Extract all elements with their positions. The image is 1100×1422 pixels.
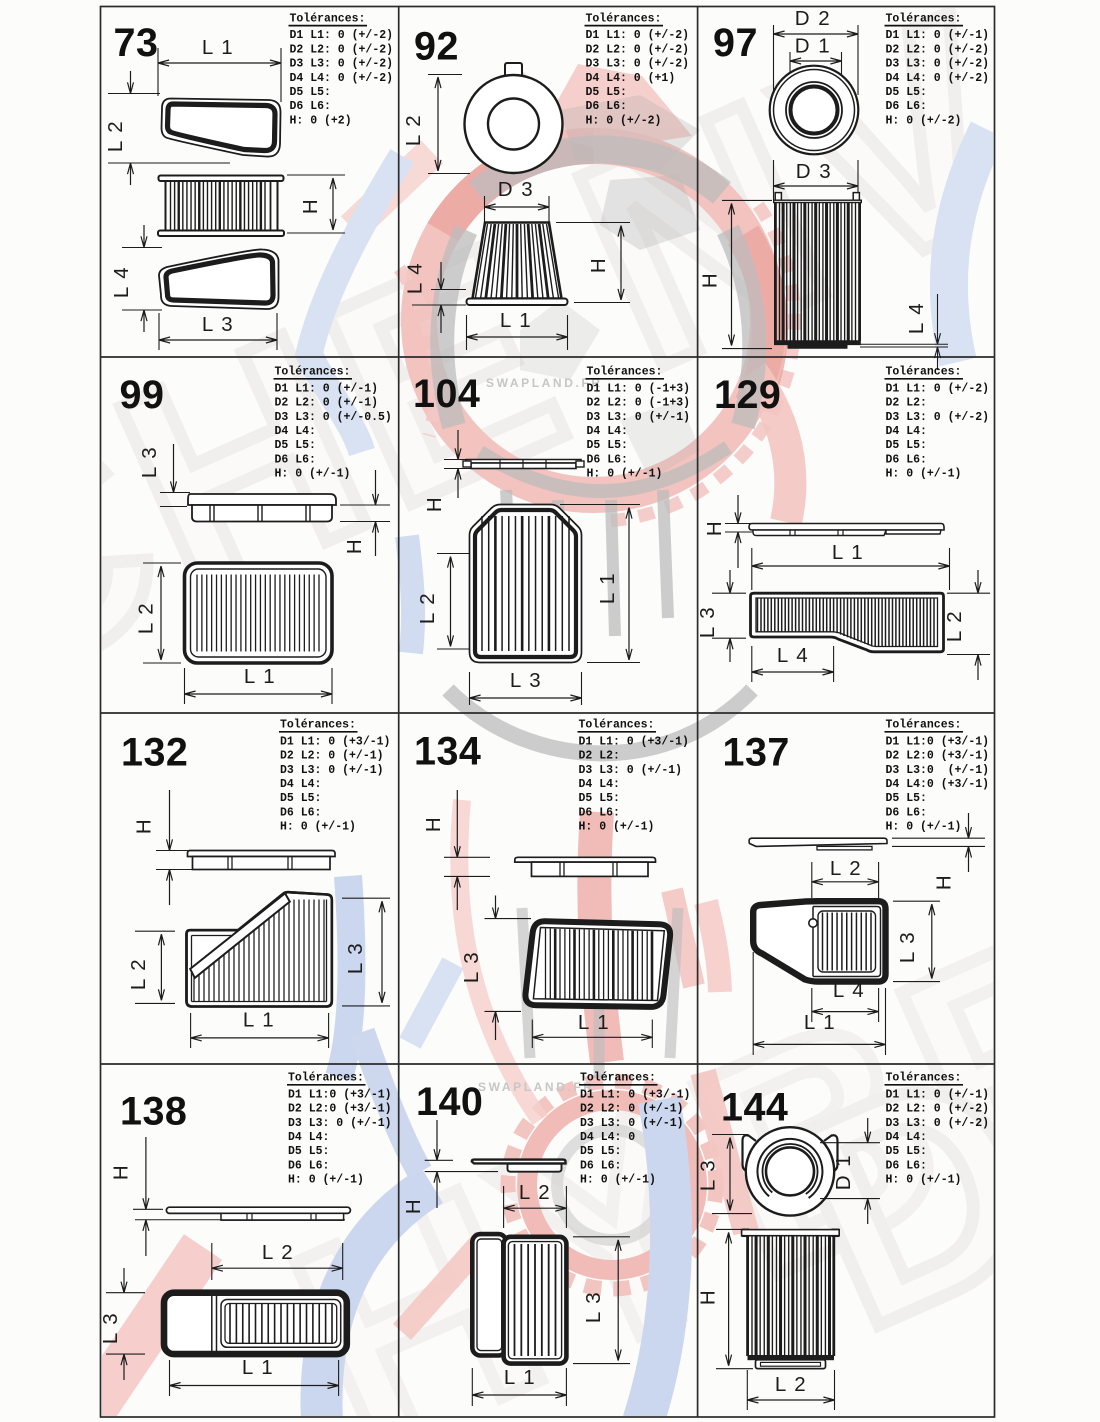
svg-text:L 3: L 3: [510, 669, 542, 692]
svg-text:H: H: [299, 198, 322, 214]
svg-text:D2 L2: 0 (-1+3): D2 L2: 0 (-1+3): [587, 397, 691, 410]
svg-text:SWAPLAND.FR: SWAPLAND.FR: [478, 1080, 595, 1094]
svg-text:D6 L6:: D6 L6:: [886, 100, 927, 113]
svg-text:H: H: [402, 1198, 425, 1214]
svg-text:H: 0 (+/-2): H: 0 (+/-2): [586, 114, 662, 127]
svg-text:D2 L2: 0 (+/-2): D2 L2: 0 (+/-2): [886, 43, 990, 56]
svg-text:D 3: D 3: [498, 178, 534, 201]
svg-text:L 3: L 3: [582, 1291, 605, 1323]
svg-text:D3 L3:0 (+/-1): D3 L3:0 (+/-1): [886, 764, 990, 777]
svg-text:D4 L4:0 (+3/-1): D4 L4:0 (+3/-1): [886, 778, 990, 791]
svg-text:D1 L1:0 (+3/-1): D1 L1:0 (+3/-1): [288, 1088, 392, 1101]
svg-text:H: 0 (+2): H: 0 (+2): [290, 114, 352, 127]
svg-text:D5 L5:: D5 L5:: [886, 792, 927, 805]
svg-text:D1 L1: 0 (+/-1): D1 L1: 0 (+/-1): [275, 382, 379, 395]
svg-text:H: H: [343, 538, 366, 554]
svg-text:L 3: L 3: [99, 1312, 122, 1344]
svg-text:H: H: [587, 257, 610, 273]
svg-text:D6 L6:: D6 L6:: [290, 100, 331, 113]
svg-text:Tolérances:: Tolérances:: [586, 12, 662, 25]
svg-text:H: 0 (+/-1): H: 0 (+/-1): [886, 1174, 962, 1187]
svg-text:L 1: L 1: [243, 1009, 275, 1032]
svg-text:D4 L4: 0 (+/-2): D4 L4: 0 (+/-2): [886, 72, 990, 85]
svg-text:D5 L5:: D5 L5:: [586, 86, 627, 99]
svg-text:L 1: L 1: [202, 36, 234, 59]
svg-text:H: 0 (+/-1): H: 0 (+/-1): [275, 468, 351, 481]
svg-text:L 2: L 2: [104, 120, 127, 152]
svg-text:Tolérances:: Tolérances:: [579, 719, 655, 732]
svg-text:D3 L3: 0 (+/-2): D3 L3: 0 (+/-2): [886, 411, 990, 424]
svg-text:L 1: L 1: [832, 541, 864, 564]
svg-text:L 2: L 2: [416, 592, 439, 624]
svg-text:D1 L1: 0 (+/-1): D1 L1: 0 (+/-1): [886, 29, 990, 42]
svg-text:D5 L5:: D5 L5:: [280, 792, 321, 805]
svg-text:L 2: L 2: [402, 114, 425, 146]
svg-text:D3 L3: 0 (+/-1): D3 L3: 0 (+/-1): [587, 411, 691, 424]
svg-text:D6 L6:: D6 L6:: [586, 100, 627, 113]
svg-text:D6 L6:: D6 L6:: [886, 453, 927, 466]
svg-text:D4 L4:: D4 L4:: [886, 1131, 927, 1144]
svg-text:H: H: [703, 520, 726, 536]
svg-text:L 3: L 3: [696, 606, 719, 638]
svg-text:L 2: L 2: [943, 610, 966, 642]
svg-text:D2 L2:0 (+3/-1): D2 L2:0 (+3/-1): [288, 1103, 392, 1116]
svg-text:D2 L2:0 (+3/-1): D2 L2:0 (+3/-1): [886, 750, 990, 763]
svg-text:H: 0 (+/-1): H: 0 (+/-1): [280, 821, 356, 834]
svg-text:D4 L4:: D4 L4:: [579, 778, 620, 791]
svg-text:D1 L1: 0 (+/-2): D1 L1: 0 (+/-2): [586, 29, 690, 42]
svg-text:D1 L1: 0 (+/-2): D1 L1: 0 (+/-2): [886, 382, 990, 395]
svg-text:D6 L6:: D6 L6:: [275, 453, 316, 466]
svg-text:L 1: L 1: [578, 1011, 610, 1034]
svg-text:140: 140: [416, 1080, 483, 1124]
svg-text:D6 L6:: D6 L6:: [580, 1159, 621, 1172]
svg-text:D3 L3: 0 (+/-1): D3 L3: 0 (+/-1): [579, 764, 683, 777]
svg-text:D1 L1: 0 (+3/-1): D1 L1: 0 (+3/-1): [580, 1088, 690, 1101]
svg-text:H: H: [699, 272, 722, 288]
svg-text:Tolérances:: Tolérances:: [288, 1072, 364, 1085]
svg-text:L 2: L 2: [135, 602, 158, 634]
svg-text:D4 L4:: D4 L4:: [288, 1131, 329, 1144]
svg-text:104: 104: [413, 372, 480, 416]
svg-text:D1 L1: 0 (-1+3): D1 L1: 0 (-1+3): [587, 382, 691, 395]
svg-text:D1 L1: 0 (+3/-1): D1 L1: 0 (+3/-1): [280, 735, 390, 748]
svg-text:D 3: D 3: [796, 160, 832, 183]
svg-text:D6 L6:: D6 L6:: [587, 453, 628, 466]
svg-text:D3 L3: 0 (+/-2): D3 L3: 0 (+/-2): [290, 58, 394, 71]
svg-text:Tolérances:: Tolérances:: [275, 366, 351, 379]
svg-text:L 2: L 2: [262, 1241, 294, 1264]
svg-text:D1 L1:0 (+3/-1): D1 L1:0 (+3/-1): [886, 735, 990, 748]
svg-text:Tolérances:: Tolérances:: [886, 1072, 962, 1085]
svg-text:L 3: L 3: [202, 313, 234, 336]
svg-text:L 4: L 4: [777, 644, 809, 667]
svg-text:H: H: [697, 1289, 720, 1305]
svg-text:L 4: L 4: [110, 266, 133, 298]
svg-text:D5 L5:: D5 L5:: [587, 439, 628, 452]
svg-text:H: 0 (+/-1): H: 0 (+/-1): [886, 468, 962, 481]
svg-text:H: H: [423, 496, 446, 512]
svg-text:D2 L2: 0 (+/-1): D2 L2: 0 (+/-1): [275, 397, 379, 410]
svg-text:D2 L2:: D2 L2:: [886, 397, 927, 410]
svg-text:Tolérances:: Tolérances:: [290, 12, 366, 25]
svg-text:L 3: L 3: [138, 446, 161, 478]
svg-text:L 4: L 4: [905, 302, 928, 334]
svg-text:L 2: L 2: [127, 958, 150, 990]
svg-text:D3 L3: 0 (+/-0.5): D3 L3: 0 (+/-0.5): [275, 411, 392, 424]
svg-text:D6 L6:: D6 L6:: [280, 806, 321, 819]
svg-text:132: 132: [121, 730, 188, 774]
svg-text:D6 L6:: D6 L6:: [886, 806, 927, 819]
svg-text:L 1: L 1: [596, 572, 619, 604]
svg-text:D6 L6:: D6 L6:: [288, 1159, 329, 1172]
svg-text:D5 L5:: D5 L5:: [886, 86, 927, 99]
svg-text:D 1: D 1: [832, 1154, 855, 1190]
svg-text:D5 L5:: D5 L5:: [290, 86, 331, 99]
svg-text:L 3: L 3: [896, 931, 919, 963]
svg-text:D6 L6:: D6 L6:: [886, 1159, 927, 1172]
svg-text:L 2: L 2: [775, 1373, 807, 1396]
svg-text:D4 L4:: D4 L4:: [587, 425, 628, 438]
svg-text:H: H: [110, 1164, 133, 1180]
svg-text:H: 0 (+/-2): H: 0 (+/-2): [886, 114, 962, 127]
svg-text:L 1: L 1: [804, 1011, 836, 1034]
svg-text:L 1: L 1: [244, 665, 276, 688]
svg-text:D4 L4:: D4 L4:: [275, 425, 316, 438]
svg-text:D 2: D 2: [795, 7, 831, 30]
svg-text:D4 L4:: D4 L4:: [280, 778, 321, 791]
svg-text:L 4: L 4: [833, 979, 865, 1002]
svg-text:H: 0 (+/-1): H: 0 (+/-1): [580, 1174, 656, 1187]
svg-text:D4 L4: 0 (+/-2): D4 L4: 0 (+/-2): [290, 72, 394, 85]
svg-text:D1 L1: 0 (+3/-1): D1 L1: 0 (+3/-1): [579, 735, 689, 748]
svg-text:97: 97: [713, 21, 758, 65]
svg-text:D3 L3: 0 (+/-2): D3 L3: 0 (+/-2): [886, 58, 990, 71]
svg-text:134: 134: [414, 729, 481, 773]
svg-text:D2 L2: 0 (+/-1): D2 L2: 0 (+/-1): [280, 750, 384, 763]
svg-text:D2 L2: 0 (+/-2): D2 L2: 0 (+/-2): [290, 43, 394, 56]
svg-text:Tolérances:: Tolérances:: [886, 366, 962, 379]
svg-text:144: 144: [721, 1085, 788, 1129]
svg-text:99: 99: [120, 373, 165, 417]
svg-text:L 4: L 4: [404, 262, 427, 294]
svg-text:H: H: [133, 818, 156, 834]
svg-text:L 1: L 1: [500, 309, 532, 332]
svg-text:D5 L5:: D5 L5:: [275, 439, 316, 452]
svg-text:D5 L5:: D5 L5:: [580, 1145, 621, 1158]
svg-text:D4 L4: 0 (+1): D4 L4: 0 (+1): [586, 72, 676, 85]
svg-text:92: 92: [414, 24, 459, 68]
svg-text:129: 129: [714, 373, 781, 417]
svg-text:H: H: [933, 874, 956, 890]
svg-text:D3 L3: 0 (+/-2): D3 L3: 0 (+/-2): [586, 58, 690, 71]
svg-text:137: 137: [723, 730, 790, 774]
svg-text:L 2: L 2: [830, 857, 862, 880]
svg-text:H: H: [422, 816, 445, 832]
svg-text:D4 L4: 0: D4 L4: 0: [580, 1131, 635, 1144]
svg-text:D 1: D 1: [795, 35, 831, 58]
svg-text:D3 L3: 0 (+/-1): D3 L3: 0 (+/-1): [288, 1117, 392, 1130]
svg-text:H: 0 (+/-1): H: 0 (+/-1): [288, 1174, 364, 1187]
svg-text:D2 L2: 0 (+/-1): D2 L2: 0 (+/-1): [580, 1103, 684, 1116]
svg-text:Tolérances:: Tolérances:: [580, 1072, 656, 1085]
svg-text:D1 L1: 0 (+/-1): D1 L1: 0 (+/-1): [886, 1088, 990, 1101]
svg-text:D5 L5:: D5 L5:: [886, 1145, 927, 1158]
svg-text:D4 L4:: D4 L4:: [886, 425, 927, 438]
svg-text:D6 L6:: D6 L6:: [579, 806, 620, 819]
svg-text:L 3: L 3: [344, 942, 367, 974]
svg-text:L 3: L 3: [460, 951, 483, 983]
svg-text:Tolérances:: Tolérances:: [587, 366, 663, 379]
svg-text:138: 138: [120, 1089, 187, 1133]
svg-text:SWAPLAND.FR: SWAPLAND.FR: [486, 376, 603, 390]
svg-text:L 3: L 3: [697, 1159, 720, 1191]
svg-text:D5 L5:: D5 L5:: [579, 792, 620, 805]
svg-text:H: 0 (+/-1): H: 0 (+/-1): [579, 821, 655, 834]
svg-text:D2 L2: 0 (+/-2): D2 L2: 0 (+/-2): [586, 43, 690, 56]
svg-text:H: 0 (+/-1): H: 0 (+/-1): [587, 468, 663, 481]
svg-text:H: 0 (+/-1): H: 0 (+/-1): [886, 821, 962, 834]
svg-text:D3 L3: 0 (+/-1): D3 L3: 0 (+/-1): [280, 764, 384, 777]
svg-text:D2 L2:: D2 L2:: [579, 750, 620, 763]
svg-text:73: 73: [114, 21, 159, 65]
svg-text:L 1: L 1: [504, 1366, 536, 1389]
svg-text:Tolérances:: Tolérances:: [886, 719, 962, 732]
svg-text:Tolérances:: Tolérances:: [280, 719, 356, 732]
svg-text:D3 L3: 0 (+/-2): D3 L3: 0 (+/-2): [886, 1117, 990, 1130]
svg-text:D1 L1: 0 (+/-2): D1 L1: 0 (+/-2): [290, 29, 394, 42]
svg-text:D2 L2: 0 (+/-2): D2 L2: 0 (+/-2): [886, 1103, 990, 1116]
svg-text:L 1: L 1: [242, 1356, 274, 1379]
svg-text:Tolérances:: Tolérances:: [886, 12, 962, 25]
svg-text:D3 L3: 0 (+/-1): D3 L3: 0 (+/-1): [580, 1117, 684, 1130]
svg-text:D5 L5:: D5 L5:: [886, 439, 927, 452]
svg-text:L 2: L 2: [519, 1181, 551, 1204]
svg-text:D5 L5:: D5 L5:: [288, 1145, 329, 1158]
